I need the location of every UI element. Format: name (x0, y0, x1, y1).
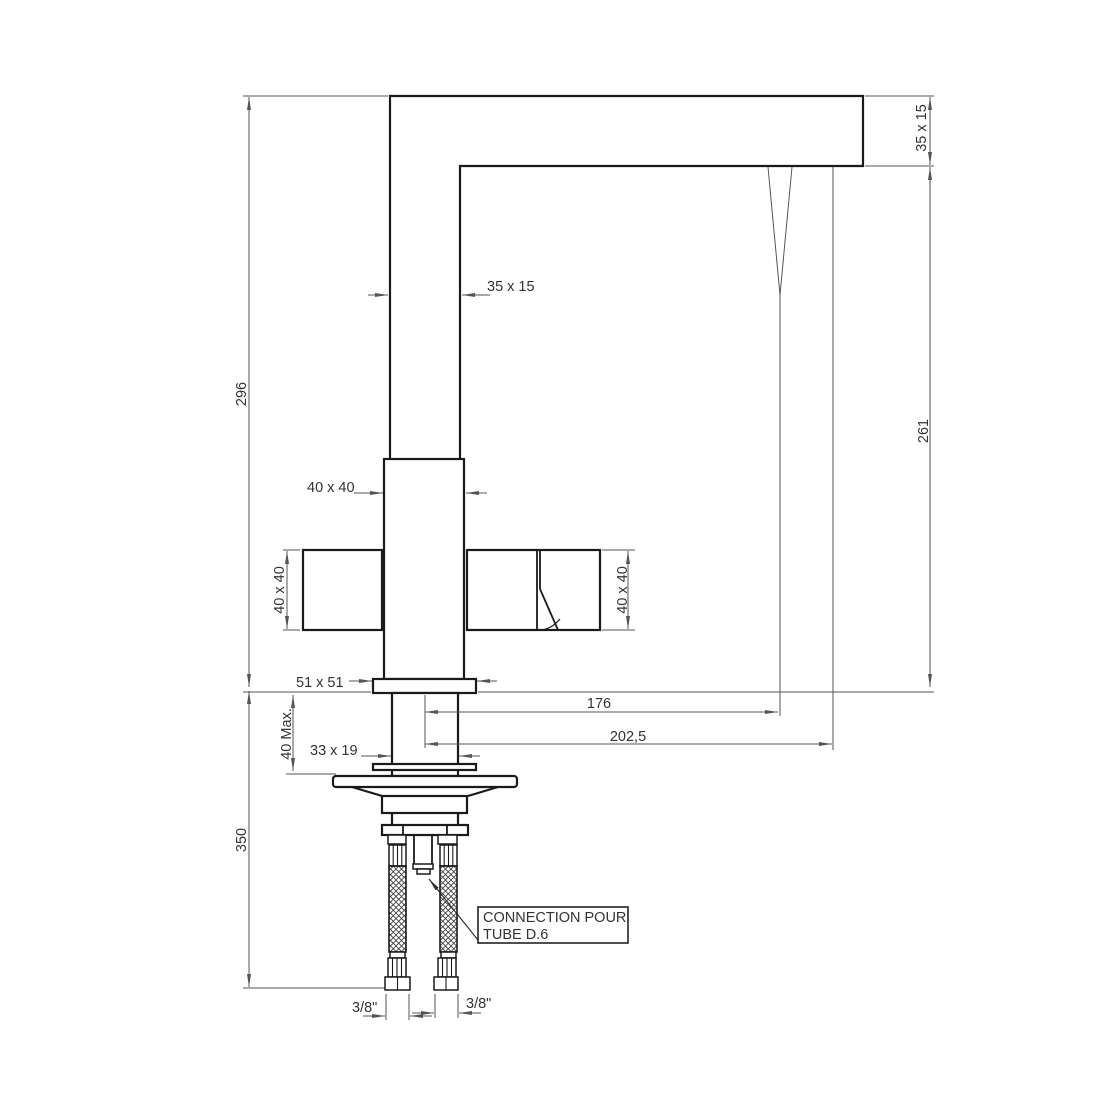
washer (373, 764, 476, 770)
dim-body-section-label: 40 x 40 (307, 480, 355, 496)
dim-thread-right-label: 3/8" (466, 996, 491, 1012)
handle-right (467, 550, 600, 630)
tube-connection (413, 835, 433, 874)
handle-left (303, 550, 382, 630)
dim-handle-left-section-label: 40 x 40 (272, 566, 288, 614)
body-section (384, 459, 464, 679)
dim-spout-to-deck-label: 261 (916, 419, 932, 443)
dim-overall-height-label: 296 (234, 382, 250, 406)
dim-hose-length-label: 350 (234, 828, 250, 852)
callout-line1: CONNECTION POUR (483, 910, 626, 926)
mounting-nut (382, 825, 468, 835)
dim-shank-section-label: 33 x 19 (310, 743, 358, 759)
mounting-flange (333, 776, 517, 825)
water-stream-lines (768, 167, 792, 716)
dim-max-deck-thickness-label: 40 Max. (279, 708, 295, 760)
supply-hose-left (385, 835, 410, 990)
faucet-technical-drawing: 296 350 40 Max. 40 x 40 40 x 40 35 x 15 … (0, 0, 1100, 1100)
dim-spout-section-label: 35 x 15 (914, 104, 930, 152)
base-plate (373, 679, 476, 693)
callout-line2: TUBE D.6 (483, 927, 548, 943)
technical-drawing-page: 296 350 40 Max. 40 x 40 40 x 40 35 x 15 … (0, 0, 1100, 1100)
dim-reach-overall-label: 202,5 (610, 729, 646, 745)
callout-box: CONNECTION POUR TUBE D.6 (478, 907, 628, 943)
dim-base-plate-label: 51 x 51 (296, 675, 344, 691)
dim-reach-aerator-label: 176 (587, 696, 611, 712)
supply-hose-right (434, 835, 458, 990)
dim-thread-left-label: 3/8" (352, 1000, 377, 1016)
spout-and-column-outline (390, 96, 863, 459)
dim-column-section-label: 35 x 15 (487, 279, 535, 295)
dimension-lines (249, 97, 930, 987)
dim-handle-right-section-label: 40 x 40 (615, 566, 631, 614)
